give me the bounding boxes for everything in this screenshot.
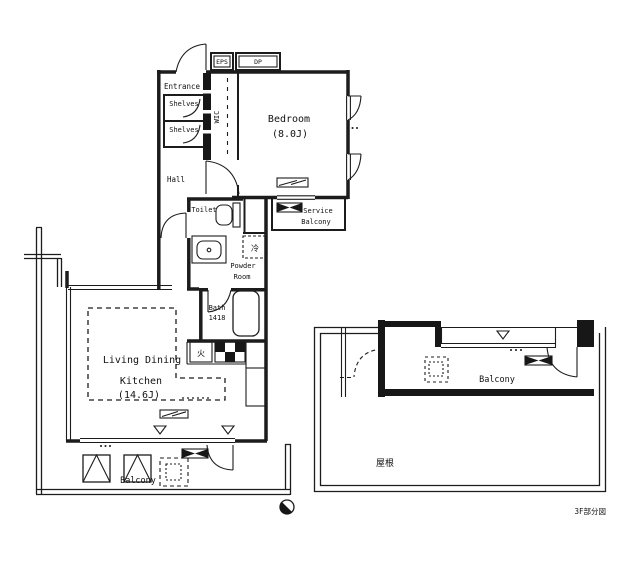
floor-plan: EPS DP Entrance Shelves Shelves WIC Bedr…	[0, 0, 640, 569]
balcony-main-label: Balcony	[120, 476, 156, 486]
ldk-label-1: Living Dining	[103, 355, 181, 366]
caption-label: 3F部分図	[574, 506, 606, 516]
bedroom-size-label: (8.0J)	[272, 129, 308, 140]
shelves-lower-label: Shelves	[169, 126, 199, 134]
powder-room-label-2: Room	[234, 273, 251, 281]
refrigerator-label: 冷	[251, 243, 259, 253]
roof-label: 屋根	[376, 457, 394, 469]
stove-label: 火	[197, 349, 205, 358]
hall-label: Hall	[167, 175, 185, 184]
kitchen-counter	[182, 342, 266, 406]
shelves-upper-label: Shelves	[169, 100, 199, 108]
window-sill-symbols	[154, 178, 308, 434]
washbasin-icon	[192, 236, 226, 263]
compass-icon	[280, 500, 294, 514]
toilet-label: Toilet	[191, 206, 216, 214]
balcony-upper-label: Balcony	[479, 375, 515, 385]
ldk-label-2: Kitchen	[120, 376, 162, 387]
room-labels: EPS DP Entrance Shelves Shelves WIC Bedr…	[103, 58, 606, 516]
service-balcony-label-1: Service	[303, 207, 333, 215]
bath-label: Bath	[209, 304, 226, 312]
bathtub-icon	[233, 291, 259, 336]
ldk-size-label: (14.6J)	[118, 390, 160, 401]
dp-label: DP	[254, 58, 262, 66]
entrance-label: Entrance	[164, 82, 201, 91]
eps-label: EPS	[216, 58, 228, 66]
toilet-icon	[216, 203, 240, 227]
wic-label: WIC	[213, 111, 221, 124]
service-balcony-hatch	[277, 203, 302, 212]
bedroom-label: Bedroom	[268, 114, 310, 125]
service-balcony-label-2: Balcony	[301, 218, 331, 226]
roof-structure	[314, 320, 606, 492]
floor-plan-drawing: EPS DP Entrance Shelves Shelves WIC Bedr…	[0, 0, 640, 569]
bath-size-label: 1418	[209, 314, 226, 322]
powder-room-label-1: Powder	[230, 262, 255, 270]
